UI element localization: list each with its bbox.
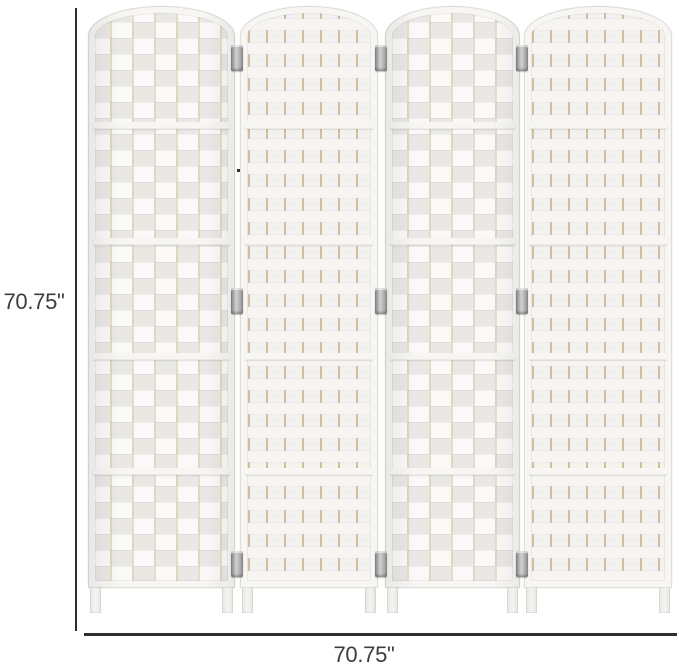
panel-frame-bar xyxy=(93,238,230,245)
hinge-icon xyxy=(375,288,387,314)
divider-panel-4 xyxy=(524,6,672,588)
hinge-icon xyxy=(516,551,528,577)
panel-leg xyxy=(387,587,398,613)
panel-frame-bar xyxy=(93,122,230,129)
panel-frame-bar xyxy=(390,468,515,475)
room-divider xyxy=(0,0,679,669)
hinge-icon xyxy=(231,551,243,577)
panel-leg xyxy=(365,587,376,613)
panel-leg xyxy=(507,587,518,613)
product-dimension-diagram: 70.75" 17.75" 70.75" xyxy=(0,0,679,669)
panel-leg xyxy=(222,587,233,613)
panel-frame-bar xyxy=(245,353,373,360)
hinge-icon xyxy=(231,288,243,314)
panel-frame-bar xyxy=(93,353,230,360)
hinge-icon xyxy=(375,45,387,71)
panel-leg xyxy=(526,587,537,613)
panel-frame-bar xyxy=(93,468,230,475)
panel-frame-bar xyxy=(245,238,373,245)
panel-frame-bar xyxy=(390,238,515,245)
divider-panel-3 xyxy=(385,6,520,588)
panel-leg xyxy=(242,587,253,613)
panel-frame-bar xyxy=(245,468,373,475)
panel-leg xyxy=(659,587,670,613)
hinge-icon xyxy=(231,45,243,71)
hinge-icon xyxy=(516,288,528,314)
panel-frame-bar xyxy=(529,238,667,245)
panel-frame-bar xyxy=(390,353,515,360)
hinge-icon xyxy=(516,45,528,71)
panel-frame-bar xyxy=(390,122,515,129)
panel-frame-bar xyxy=(245,122,373,129)
panel-frame-bar xyxy=(529,468,667,475)
panel-frame-bar xyxy=(529,353,667,360)
divider-panel-2 xyxy=(240,6,378,588)
panel-leg xyxy=(90,587,101,613)
panel-frame-bar xyxy=(529,122,667,129)
divider-panel-1 xyxy=(88,6,235,588)
hinge-icon xyxy=(375,551,387,577)
